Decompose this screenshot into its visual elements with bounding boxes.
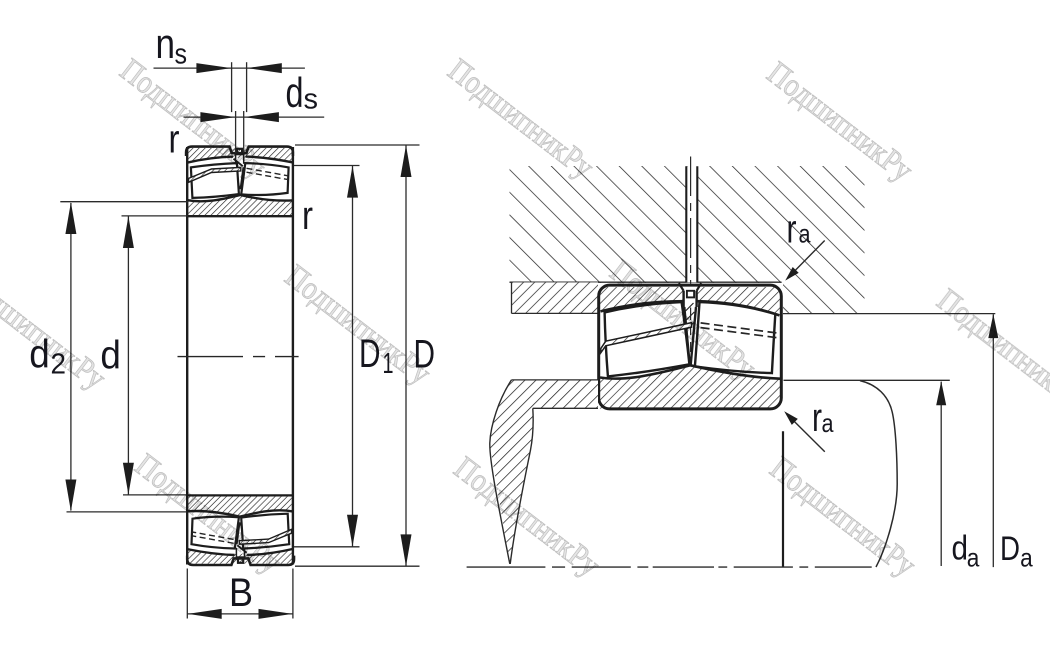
- svg-text:a: a: [799, 219, 811, 249]
- svg-text:s: s: [175, 39, 188, 71]
- svg-text:s: s: [304, 84, 319, 116]
- svg-text:r: r: [787, 208, 797, 252]
- svg-text:B: B: [229, 571, 253, 615]
- svg-text:n: n: [156, 20, 176, 67]
- svg-text:a: a: [1020, 542, 1033, 572]
- svg-text:d: d: [286, 69, 304, 116]
- svg-text:a: a: [822, 408, 834, 438]
- svg-text:r: r: [302, 194, 313, 238]
- svg-text:a: a: [967, 542, 980, 572]
- svg-text:d: d: [952, 530, 969, 568]
- svg-text:D: D: [1000, 530, 1020, 568]
- svg-text:r: r: [812, 396, 822, 440]
